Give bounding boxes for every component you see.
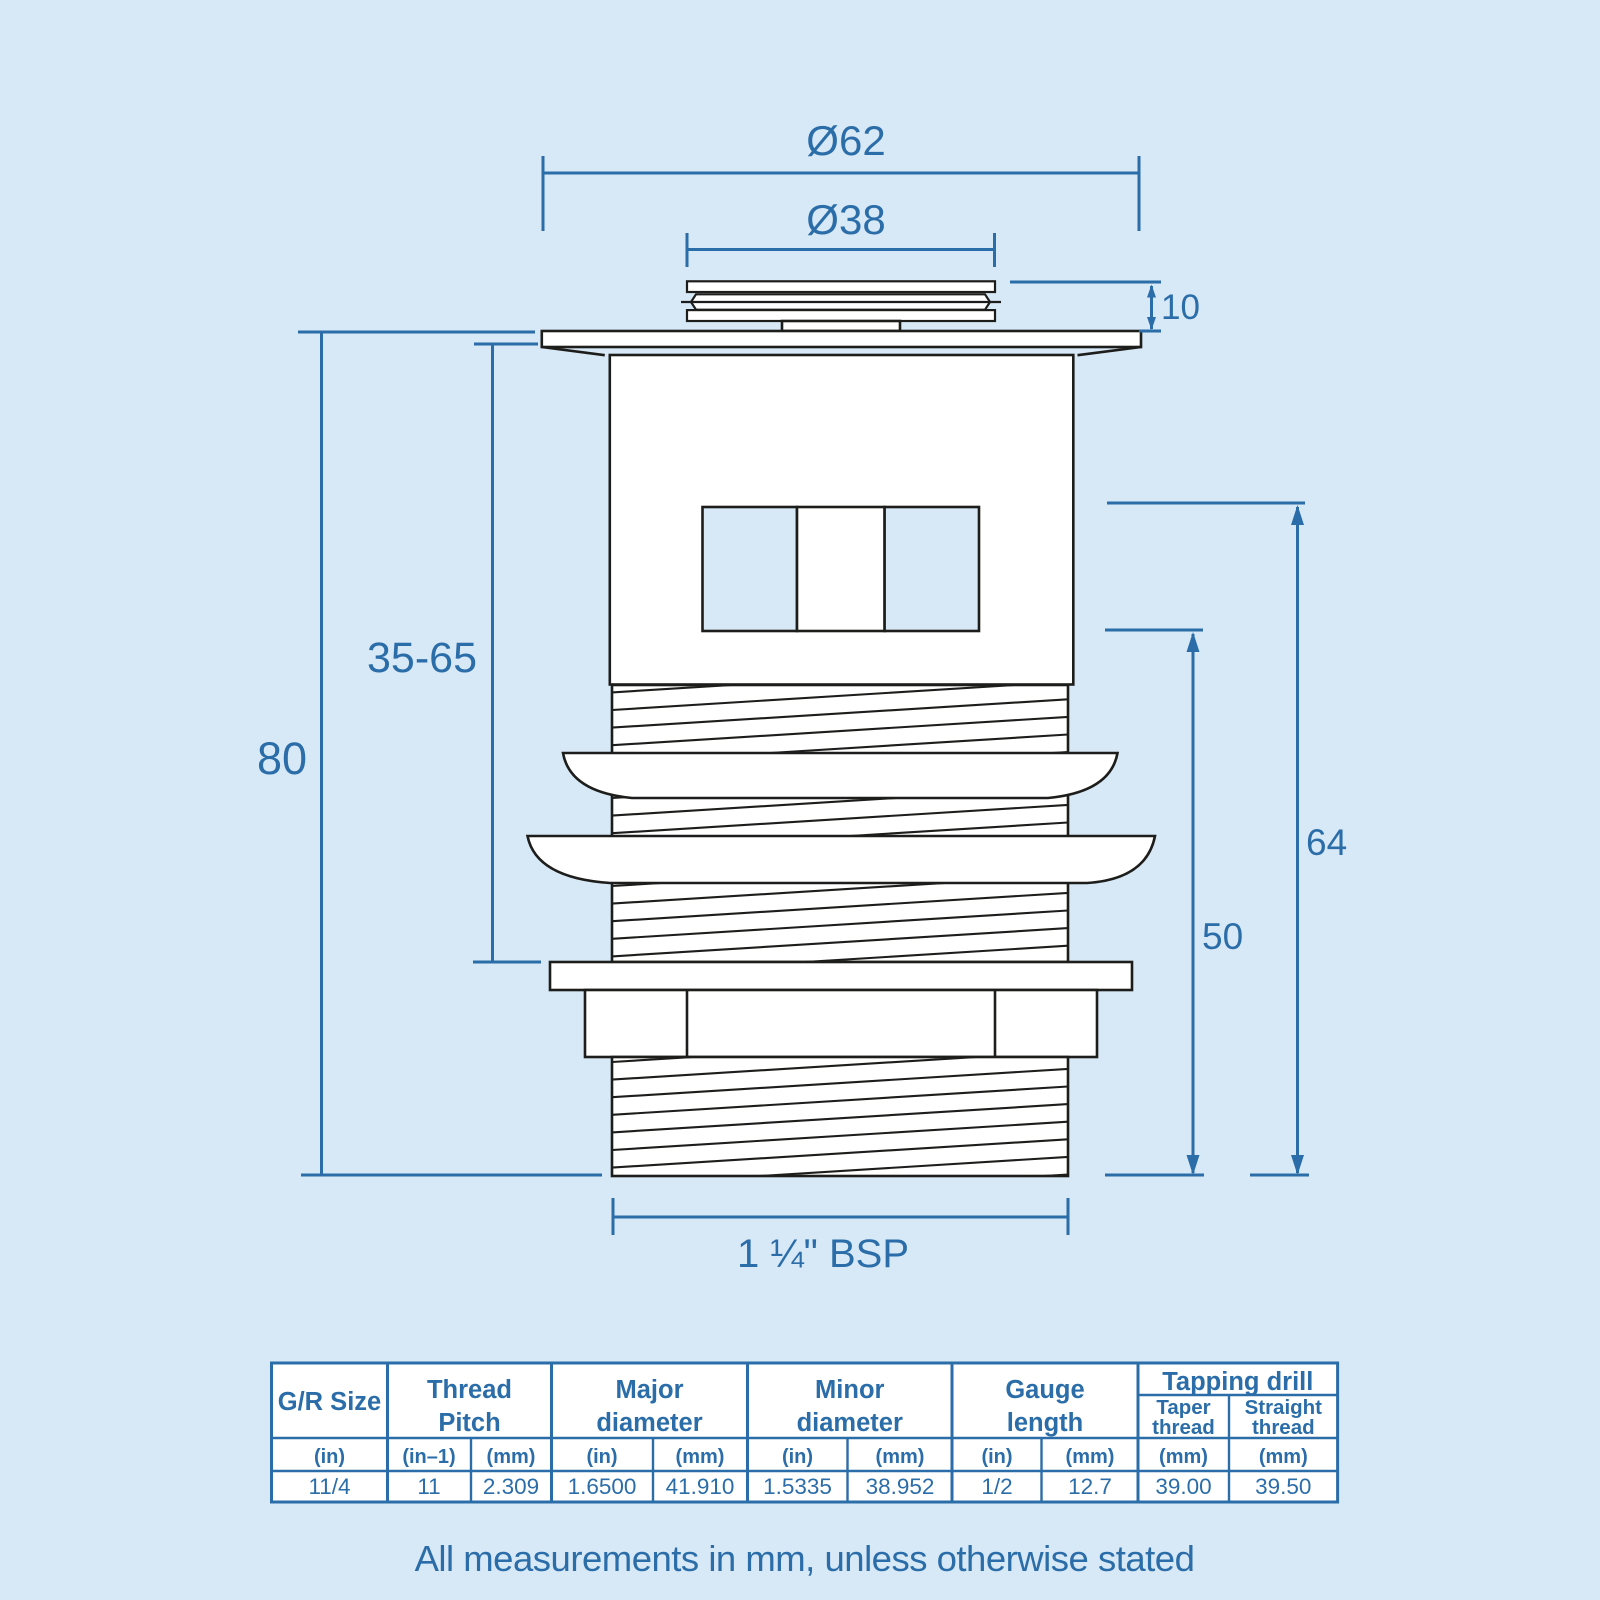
svg-text:thread: thread bbox=[1152, 1416, 1215, 1439]
svg-text:39.00: 39.00 bbox=[1155, 1474, 1211, 1499]
svg-text:(mm): (mm) bbox=[876, 1446, 925, 1468]
svg-text:Gauge: Gauge bbox=[1005, 1376, 1084, 1404]
svg-text:80: 80 bbox=[257, 733, 307, 784]
svg-text:(in): (in) bbox=[586, 1446, 617, 1468]
svg-text:(in–1): (in–1) bbox=[402, 1446, 455, 1468]
svg-text:G/R Size: G/R Size bbox=[278, 1388, 381, 1416]
svg-text:Pitch: Pitch bbox=[438, 1409, 500, 1437]
svg-text:(in): (in) bbox=[981, 1446, 1012, 1468]
svg-text:50: 50 bbox=[1202, 916, 1243, 957]
svg-text:(mm): (mm) bbox=[1159, 1446, 1208, 1468]
svg-text:Ø38: Ø38 bbox=[806, 196, 885, 243]
svg-text:(in): (in) bbox=[782, 1446, 813, 1468]
svg-text:Thread: Thread bbox=[427, 1376, 512, 1404]
svg-text:64: 64 bbox=[1306, 822, 1347, 863]
svg-text:Tapping drill: Tapping drill bbox=[1162, 1368, 1313, 1396]
svg-text:2.309: 2.309 bbox=[483, 1474, 539, 1499]
svg-text:(mm): (mm) bbox=[1259, 1446, 1308, 1468]
svg-text:(in): (in) bbox=[314, 1446, 345, 1468]
svg-text:(mm): (mm) bbox=[676, 1446, 725, 1468]
svg-text:1.6500: 1.6500 bbox=[568, 1474, 637, 1499]
svg-text:10: 10 bbox=[1161, 288, 1200, 327]
svg-text:11: 11 bbox=[417, 1474, 440, 1499]
svg-text:thread: thread bbox=[1252, 1416, 1315, 1439]
svg-text:35-65: 35-65 bbox=[367, 634, 477, 682]
svg-text:Major: Major bbox=[615, 1376, 683, 1404]
svg-text:1 ¼" BSP: 1 ¼" BSP bbox=[737, 1232, 909, 1276]
svg-text:Minor: Minor bbox=[815, 1376, 884, 1404]
svg-text:(mm): (mm) bbox=[487, 1446, 536, 1468]
svg-text:11/4: 11/4 bbox=[308, 1474, 350, 1499]
svg-text:diameter: diameter bbox=[596, 1409, 702, 1437]
svg-text:(mm): (mm) bbox=[1066, 1446, 1115, 1468]
svg-text:Ø62: Ø62 bbox=[806, 117, 885, 164]
svg-text:41.910: 41.910 bbox=[666, 1474, 735, 1499]
svg-text:1.5335: 1.5335 bbox=[763, 1474, 832, 1499]
svg-text:12.7: 12.7 bbox=[1068, 1474, 1112, 1499]
svg-text:1/2: 1/2 bbox=[981, 1474, 1012, 1499]
svg-text:39.50: 39.50 bbox=[1255, 1474, 1311, 1499]
svg-text:38.952: 38.952 bbox=[866, 1474, 935, 1499]
svg-text:length: length bbox=[1007, 1409, 1084, 1437]
svg-text:All measurements in mm, unless: All measurements in mm, unless otherwise… bbox=[415, 1538, 1195, 1579]
svg-text:diameter: diameter bbox=[797, 1409, 903, 1437]
